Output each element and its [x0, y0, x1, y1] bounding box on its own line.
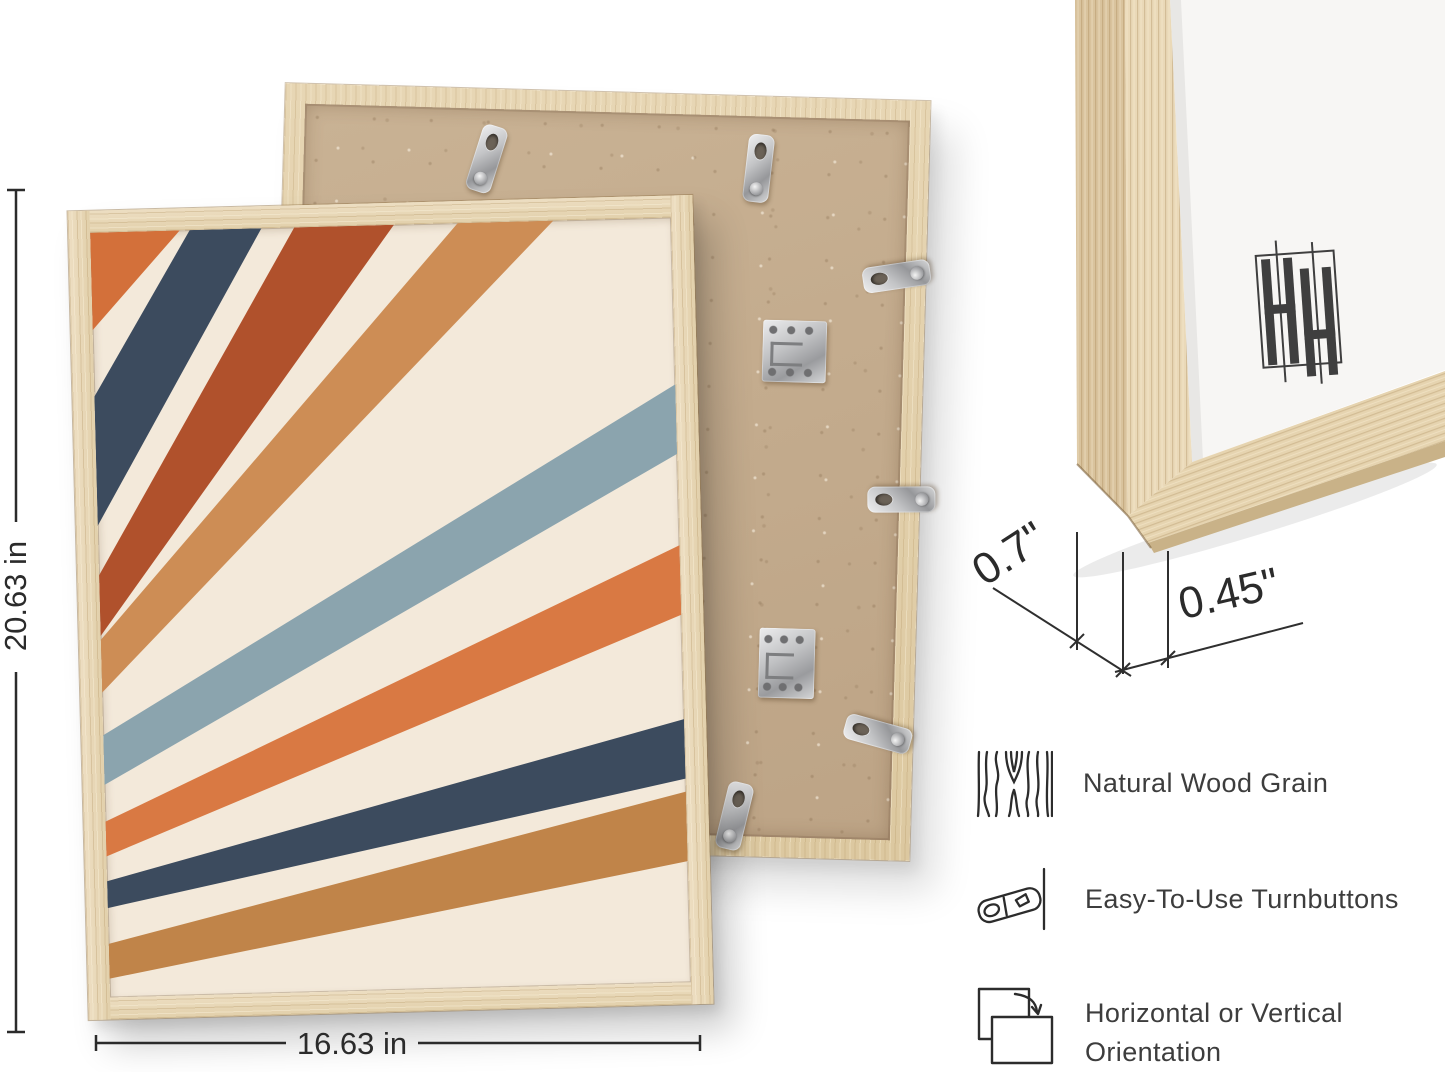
sunburst-artwork [90, 218, 691, 998]
artwork-stripes [90, 218, 691, 998]
page-root: { "product": { "description": "Natural w… [0, 0, 1445, 1069]
feature-label-orientation-line2: Orientation [1085, 1033, 1343, 1072]
turnbutton-tab [861, 258, 932, 294]
turnbutton-tab [464, 122, 509, 195]
feature-label-wood-grain: Natural Wood Grain [1083, 764, 1328, 803]
turnbutton-tab [714, 780, 755, 852]
width-dimension: 16.63 in [80, 1018, 720, 1068]
feature-row-orientation: Horizontal or Vertical Orientation [975, 986, 1343, 1072]
turnbutton-icon [975, 866, 1055, 934]
turnbutton-tab [842, 712, 914, 755]
frame-side-grain [1075, 0, 1128, 516]
width-dimension-label: 16.63 in [297, 1026, 407, 1061]
face-width-dimension-label: 0.45" [1174, 559, 1284, 630]
turnbutton-tab [742, 133, 776, 204]
z-bracket [758, 628, 816, 700]
orientation-icon [975, 986, 1055, 1066]
z-bracket [762, 320, 828, 384]
feature-row-wood-grain: Natural Wood Grain [975, 750, 1328, 818]
front-frame [68, 195, 714, 1020]
depth-dimension-label: 0.7" [964, 512, 1055, 595]
height-dimension: 20.63 in [0, 180, 70, 1050]
height-dimension-label: 20.63 in [0, 541, 33, 651]
feature-row-turnbuttons: Easy-To-Use Turnbuttons [975, 866, 1399, 934]
wood-grain-icon [975, 750, 1053, 818]
feature-label-turnbuttons: Easy-To-Use Turnbuttons [1085, 880, 1399, 919]
feature-label-orientation: Horizontal or Vertical Orientation [1085, 994, 1343, 1072]
feature-label-orientation-line1: Horizontal or Vertical [1085, 994, 1343, 1033]
corner-detail: 0.7" 0.45" [955, 0, 1445, 700]
turnbutton-tab [867, 486, 935, 512]
